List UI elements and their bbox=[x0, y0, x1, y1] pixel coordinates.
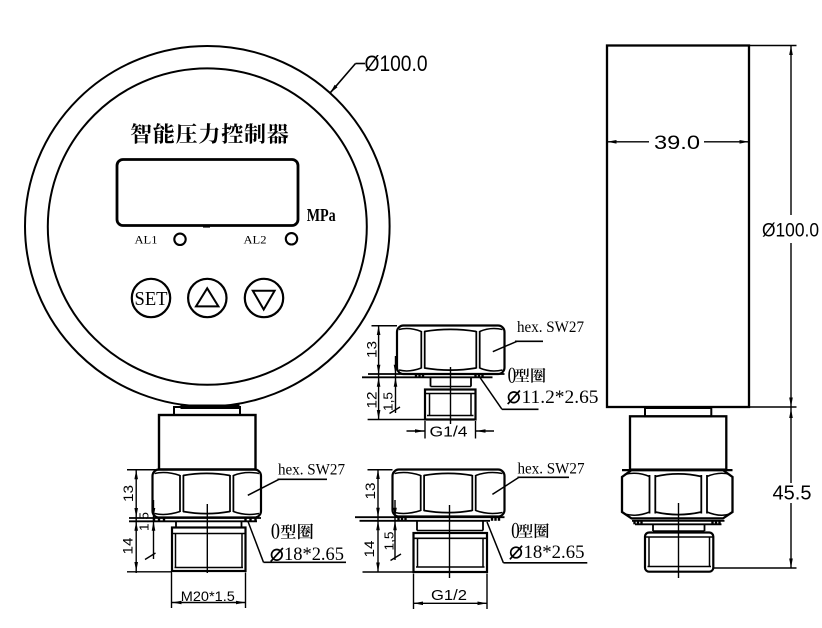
svg-text:18*2.65: 18*2.65 bbox=[524, 542, 585, 563]
svg-text:Ø100.0: Ø100.0 bbox=[762, 220, 819, 242]
svg-text:MPa: MPa bbox=[307, 205, 336, 225]
svg-text:M20*1.5: M20*1.5 bbox=[181, 589, 235, 604]
svg-text:13: 13 bbox=[363, 483, 378, 500]
svg-text:G1/2: G1/2 bbox=[431, 587, 467, 604]
svg-text:Ø100.0: Ø100.0 bbox=[365, 51, 428, 76]
svg-text:G1/4: G1/4 bbox=[430, 424, 468, 441]
svg-text:hex. SW27: hex. SW27 bbox=[278, 462, 345, 479]
svg-text:SET: SET bbox=[135, 289, 168, 310]
svg-text:14: 14 bbox=[362, 540, 377, 558]
svg-text:1,5: 1,5 bbox=[137, 512, 152, 531]
svg-text:12: 12 bbox=[365, 392, 380, 409]
svg-text:AL1: AL1 bbox=[135, 233, 158, 247]
svg-text:11.2*2.65: 11.2*2.65 bbox=[522, 387, 599, 408]
svg-text:1,5: 1,5 bbox=[381, 392, 396, 411]
svg-text:13: 13 bbox=[121, 485, 136, 502]
svg-text:45.5: 45.5 bbox=[773, 483, 812, 505]
svg-text:AL2: AL2 bbox=[244, 233, 267, 247]
svg-text:14: 14 bbox=[121, 537, 136, 555]
svg-text:13: 13 bbox=[364, 341, 379, 358]
svg-text:hex. SW27: hex. SW27 bbox=[517, 319, 584, 336]
svg-text:18*2.65: 18*2.65 bbox=[284, 544, 344, 565]
svg-text:39.0: 39.0 bbox=[654, 132, 700, 154]
svg-text:hex. SW27: hex. SW27 bbox=[518, 461, 585, 478]
svg-text:1,5: 1,5 bbox=[382, 532, 397, 551]
